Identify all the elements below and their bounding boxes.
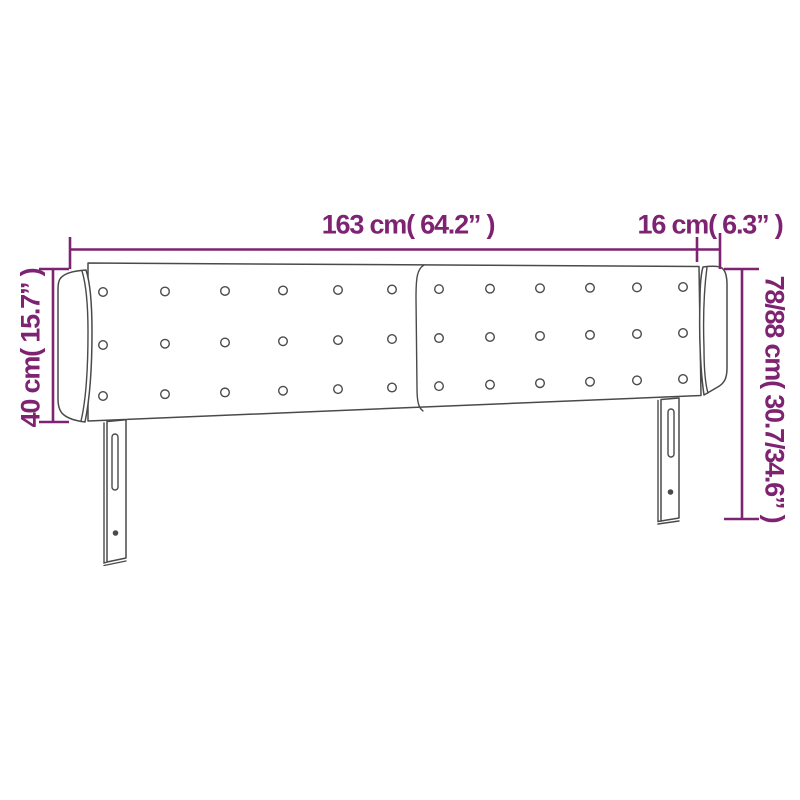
tufting-button xyxy=(536,332,545,341)
left-leg-hole xyxy=(113,530,119,536)
dimension-label-height-left: 40 cm( 15.7” ) xyxy=(18,269,45,428)
headboard-left-wing xyxy=(58,270,92,422)
tufting-button xyxy=(486,333,495,342)
tufting-button xyxy=(633,283,642,292)
tufting-button xyxy=(99,288,108,297)
right-leg xyxy=(658,398,679,524)
left-leg xyxy=(104,420,126,566)
tufting-button xyxy=(679,329,688,338)
dimension-label-width-main: 163 cm( 64.2” ) xyxy=(322,212,495,239)
tufting-button xyxy=(334,336,343,345)
tufting-button xyxy=(586,331,595,340)
right-leg-hole xyxy=(668,489,674,495)
tufting-button xyxy=(388,285,397,294)
tufting-button xyxy=(633,330,642,339)
tufting-button xyxy=(334,385,343,394)
tufting-button xyxy=(279,286,288,295)
tufting-button xyxy=(679,375,688,384)
tufting-button xyxy=(161,287,170,296)
tufting-button xyxy=(221,388,230,397)
tufting-button xyxy=(161,339,170,348)
tufting-button xyxy=(536,284,545,293)
tufting-button xyxy=(161,390,170,399)
left-leg-front xyxy=(107,420,126,562)
dimension-label-width-wing: 16 cm( 6.3” ) xyxy=(638,212,783,239)
tufting-button xyxy=(536,379,545,388)
headboard-illustration xyxy=(0,0,800,800)
tufting-button xyxy=(279,337,288,346)
dimension-diagram: 163 cm( 64.2” ) 16 cm( 6.3” ) 40 cm( 15.… xyxy=(0,0,800,800)
tufting-button xyxy=(388,383,397,392)
tufting-button xyxy=(679,283,688,292)
tufting-button xyxy=(486,380,495,389)
tufting-button xyxy=(99,341,108,350)
tufting-button xyxy=(279,386,288,395)
tufting-button xyxy=(221,287,230,296)
headboard-body xyxy=(58,263,727,422)
tufting-button xyxy=(435,382,444,391)
tufting-button xyxy=(334,286,343,295)
right-leg-front xyxy=(661,398,679,521)
tufting-button xyxy=(435,334,444,343)
tufting-button xyxy=(586,284,595,293)
tufting-button xyxy=(435,285,444,294)
dimension-label-height-right: 78/88 cm( 30.7/34.6” ) xyxy=(761,276,788,523)
tufting-button xyxy=(388,335,397,344)
tufting-button xyxy=(486,284,495,293)
tufting-button xyxy=(633,376,642,385)
tufting-button xyxy=(586,377,595,386)
tufting-button xyxy=(99,392,108,401)
tufting-button xyxy=(221,338,230,347)
